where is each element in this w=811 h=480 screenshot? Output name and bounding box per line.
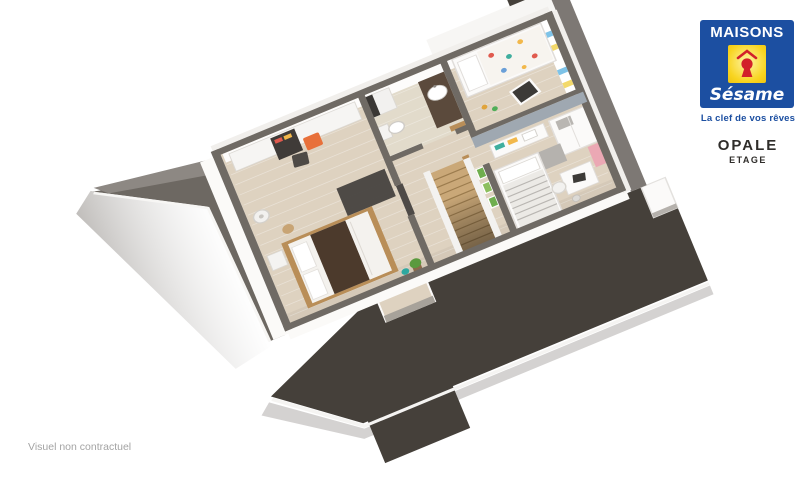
keyhole-icon [728, 45, 766, 83]
plan-level-name: ETAGE [700, 155, 796, 165]
plan-model-name: OPALE [700, 138, 796, 155]
brand-logo: MAISONS Sésame [700, 20, 794, 108]
brand-tagline: La clef de vos rêves [700, 113, 796, 124]
plan-title: OPALE ETAGE [700, 138, 796, 165]
page: MAISONS Sésame La clef de vos rêves OPAL… [0, 0, 811, 480]
floorplan-3d-render [0, 0, 811, 480]
brand-block: MAISONS Sésame La clef de vos rêves OPAL… [700, 20, 796, 165]
disclaimer-text: Visuel non contractuel [28, 441, 131, 453]
brand-name-script: Sésame [710, 87, 785, 104]
brand-name-top: MAISONS [710, 25, 784, 40]
